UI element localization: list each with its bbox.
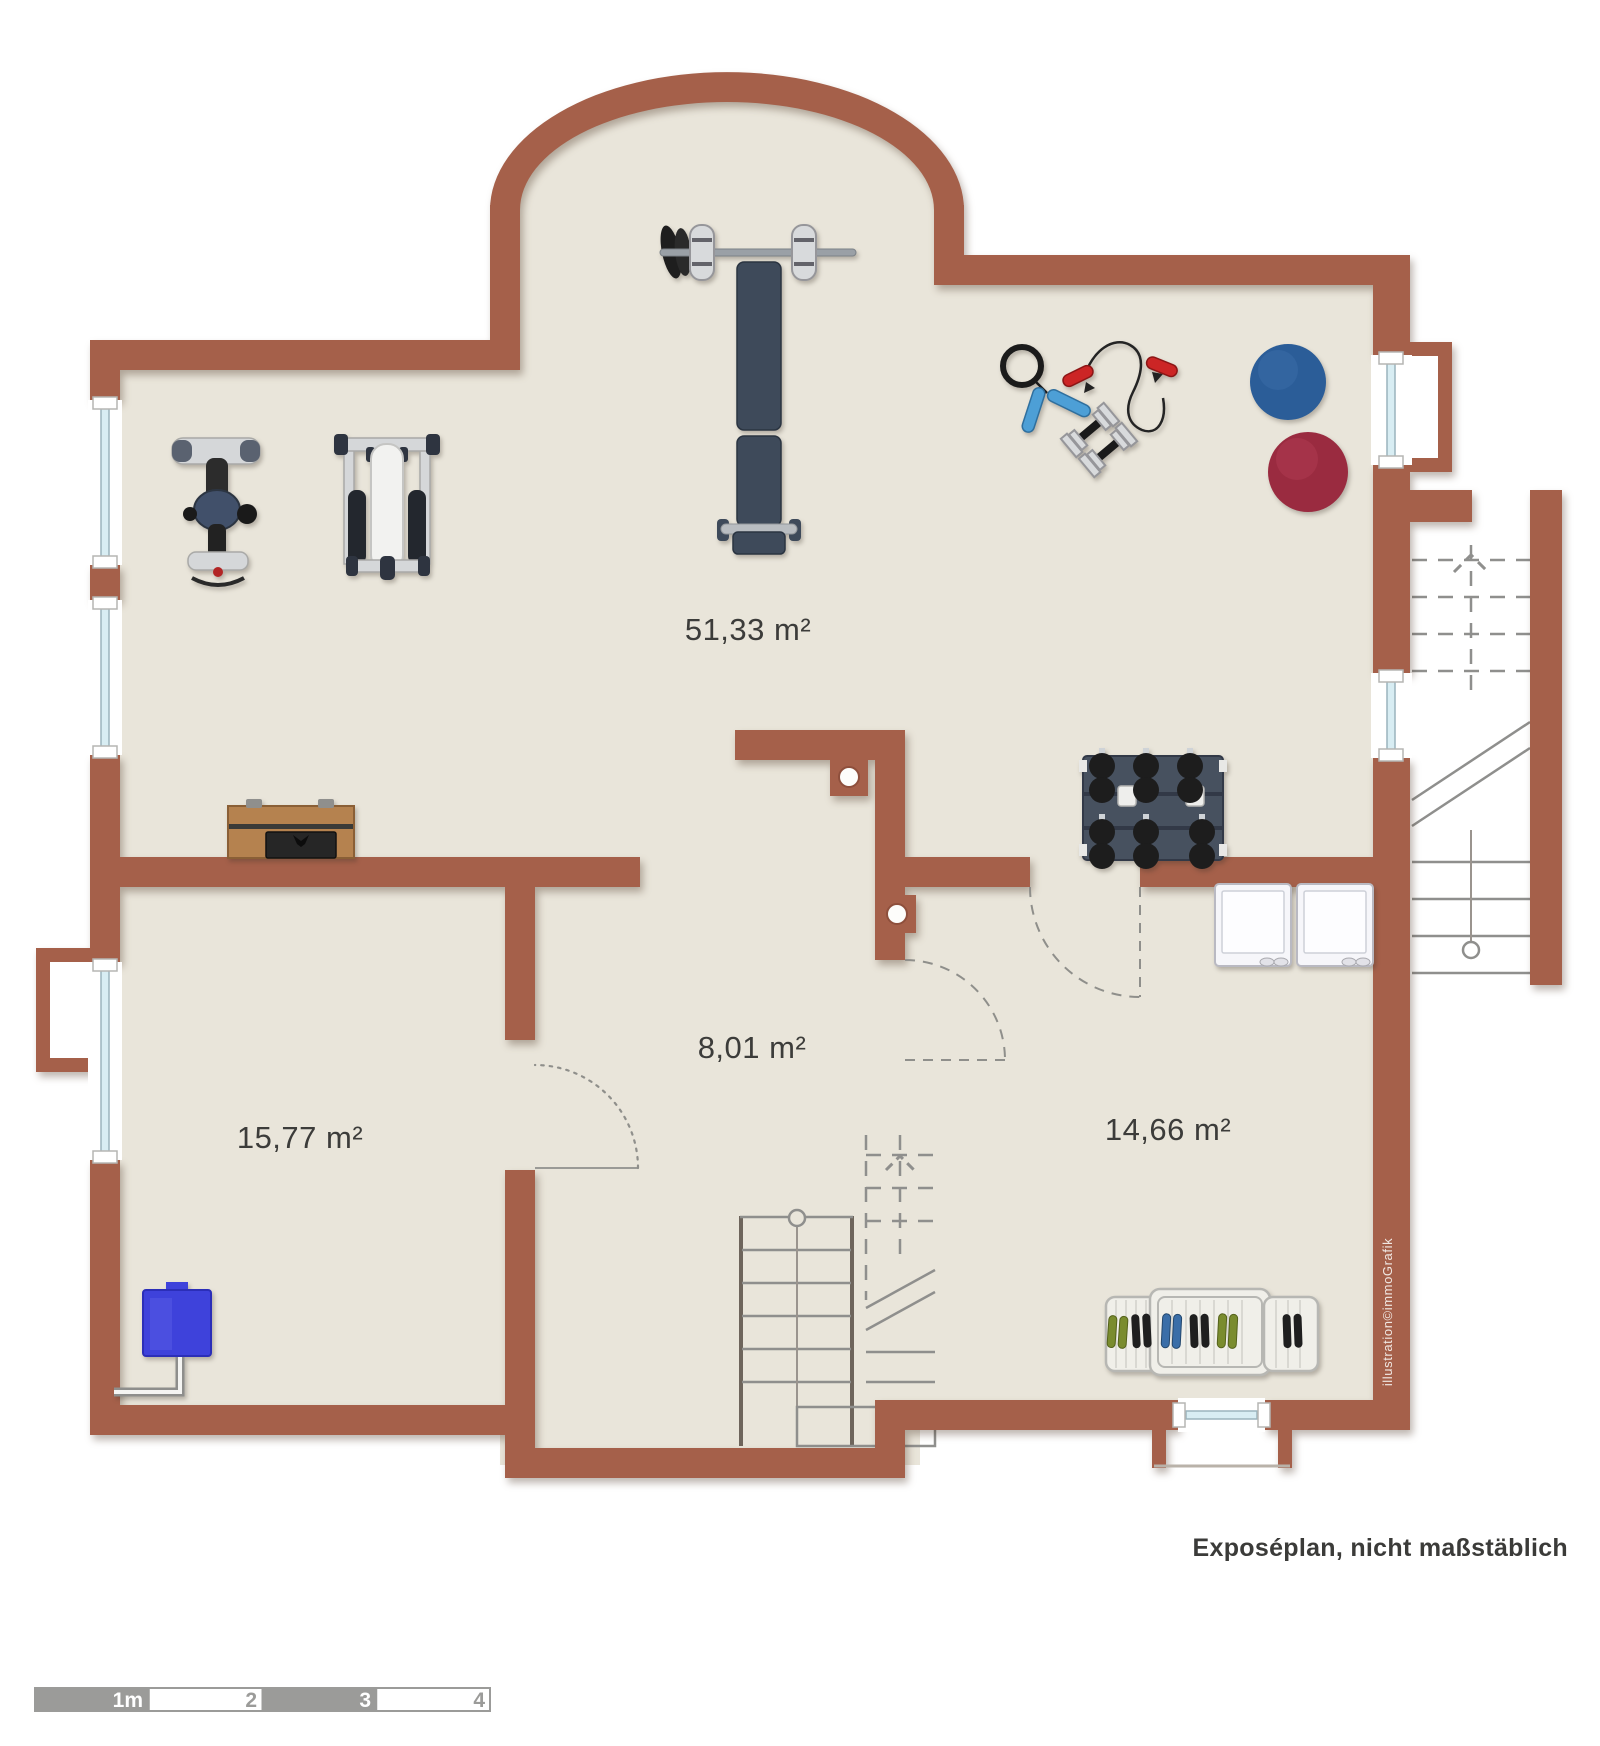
shoe-rack-icon [1106, 1289, 1318, 1375]
wall-bottom-hall [505, 1448, 905, 1478]
room-label-left: 15,77 m² [237, 1120, 363, 1155]
wall-top-left [90, 340, 520, 370]
floor-plan-page: 51,33 m² 15,77 m² 8,01 m² 14,66 m² illus… [0, 0, 1600, 1746]
stair-newel [789, 1210, 805, 1226]
room-label-right: 14,66 m² [1105, 1112, 1231, 1147]
duct-symbol-circle [887, 904, 907, 924]
storage-chest-icon [228, 799, 354, 858]
scale-bar: 1m 2 3 4 [35, 1688, 490, 1712]
multi-gym-icon [334, 434, 440, 580]
room-label-hall: 8,01 m² [698, 1030, 807, 1065]
washing-machine-icon [1215, 884, 1291, 966]
wall-top-right [934, 255, 1410, 285]
wall-stairwell-right [1530, 490, 1562, 985]
watermark-text: illustration©immoGrafik [1380, 1238, 1395, 1386]
floor-hallway [500, 738, 920, 1465]
room-label-fitness: 51,33 m² [685, 612, 811, 647]
scale-label-1m: 1m [113, 1689, 143, 1712]
window [88, 597, 122, 758]
dumbbells-row-1 [1089, 748, 1203, 803]
footnote-text: Exposéplan, nicht maßstäblich [1193, 1534, 1568, 1562]
window [88, 397, 122, 568]
dumbbell-rack-icon [1079, 748, 1227, 869]
gym-ball-blue-icon [1250, 344, 1326, 420]
duct-symbol-circle [839, 767, 859, 787]
floor-plan: 51,33 m² 15,77 m² 8,01 m² 14,66 m² illus… [0, 0, 1600, 1746]
scale-label-4: 4 [473, 1689, 485, 1712]
window [1371, 670, 1412, 761]
stair-newel [1463, 942, 1479, 958]
scale-label-3: 3 [359, 1689, 371, 1712]
staircase-right [1412, 545, 1530, 973]
window-bay-left-interior [48, 962, 92, 1060]
wall-stairwell-top [1410, 490, 1472, 522]
washing-machine-icon [1297, 884, 1373, 966]
dumbbells-row-2 [1089, 814, 1215, 869]
window [88, 959, 122, 1163]
window [1173, 1398, 1270, 1432]
gym-ball-red-icon [1268, 432, 1348, 512]
wall-bottom-left [90, 1405, 535, 1435]
wall-mid-left [105, 857, 640, 887]
scale-label-2: 2 [245, 1689, 257, 1712]
window [1371, 352, 1412, 468]
